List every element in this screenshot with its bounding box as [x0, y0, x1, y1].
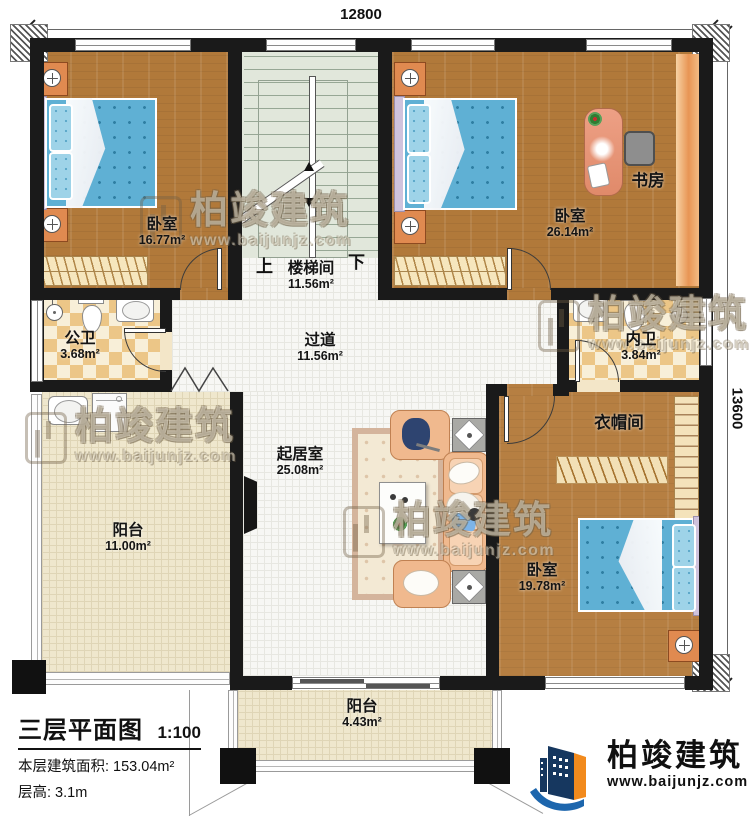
- room-area: 26.14m²: [547, 225, 594, 239]
- pillow: [49, 152, 73, 200]
- sliding-door-leaf: [366, 684, 430, 688]
- stair-up-label: 上: [256, 252, 273, 277]
- pillow: [672, 524, 696, 568]
- door-leaf: [124, 328, 166, 333]
- brand-name: 柏竣建筑: [607, 738, 748, 774]
- person-figure: [468, 508, 481, 521]
- stair-outline: [258, 80, 348, 258]
- wall-segment: [30, 380, 172, 392]
- pillow: [672, 566, 696, 612]
- brand-url: www.baijunjz.com: [607, 774, 748, 790]
- wall-segment: [440, 676, 545, 690]
- plan-title: 三层平面图: [18, 717, 143, 744]
- window: [31, 300, 43, 382]
- desk-lamp-glow: [589, 136, 615, 162]
- balcony-post: [220, 748, 256, 784]
- room-name: 内卫: [621, 331, 661, 348]
- wall-segment: [30, 288, 180, 300]
- sink-icon: [54, 400, 84, 423]
- wall-segment: [620, 380, 713, 392]
- wall-segment: [378, 52, 392, 300]
- folding-door: [170, 365, 230, 393]
- room-area: 11.00m²: [105, 539, 151, 553]
- window: [586, 39, 672, 51]
- door-leaf: [504, 396, 509, 442]
- brand-logo-text: 柏竣建筑 www.baijunjz.com: [607, 738, 748, 790]
- room-name: 起居室: [277, 446, 324, 463]
- wall-segment: [486, 384, 507, 396]
- door-leaf: [507, 248, 512, 290]
- room-area: 4.43m²: [342, 715, 382, 729]
- seat-cushion: [403, 570, 439, 596]
- room-label-living: 起居室 25.08m²: [277, 446, 324, 477]
- wardrobe-rack: [674, 396, 699, 520]
- hanging-rod: [556, 456, 668, 484]
- closet-strip: [676, 54, 699, 286]
- dresser: [36, 256, 148, 286]
- stair-direction-arrow: [304, 198, 314, 207]
- table-item: [402, 497, 408, 503]
- room-area: 3.68m²: [60, 347, 100, 361]
- desk-chair: [624, 131, 655, 166]
- lamp-icon: [401, 69, 419, 87]
- wall-segment: [230, 676, 292, 690]
- room-area: 25.08m²: [277, 463, 324, 477]
- room-name: 阳台: [342, 698, 382, 715]
- dim-right-label: 13600: [729, 384, 746, 434]
- wall-segment: [551, 288, 713, 300]
- room-area: 16.77m²: [139, 233, 186, 247]
- wardrobe: [394, 256, 506, 286]
- door-gap-floor: [507, 384, 553, 396]
- title-block: 三层平面图 1:100 本层建筑面积: 153.04m² 层高: 3.1m: [18, 710, 201, 802]
- room-name: 公卫: [60, 330, 100, 347]
- lamp-icon: [43, 69, 61, 87]
- shower-head-icon: [671, 307, 688, 324]
- pillow: [407, 154, 431, 204]
- lamp-icon: [675, 636, 693, 654]
- room-label-study: 书房: [632, 172, 665, 190]
- plant-icon: [588, 112, 602, 126]
- dim-top-label: 12800: [330, 6, 392, 23]
- room-name: 楼梯间: [288, 260, 335, 277]
- stair-down-label: 下: [348, 248, 365, 273]
- wall-segment: [553, 384, 569, 396]
- pillow: [407, 104, 431, 154]
- room-name: 衣帽间: [594, 414, 644, 432]
- sliding-door-leaf: [300, 679, 364, 683]
- window: [700, 298, 712, 366]
- sink-icon: [122, 301, 150, 320]
- door-leaf: [217, 248, 222, 290]
- shower-head-icon: [46, 304, 63, 321]
- brand-logo-icon: [520, 738, 600, 814]
- room-label-corridor: 过道 11.56m²: [297, 332, 343, 363]
- room-name: 卧室: [547, 208, 594, 225]
- room-label-bottom-balcony: 阳台 4.43m²: [342, 698, 382, 729]
- dimension-line-right: [727, 34, 728, 686]
- plan-height-line: 层高: 3.1m: [18, 781, 201, 802]
- window: [545, 677, 685, 689]
- flower-vase-icon: [392, 516, 408, 532]
- lamp-icon: [401, 217, 419, 235]
- stair-direction-arrow: [304, 162, 314, 171]
- balcony-post: [12, 660, 46, 694]
- room-area: 3.84m²: [621, 348, 661, 362]
- room-label-bedroom2: 卧室 26.14m²: [547, 208, 594, 239]
- plan-area-line: 本层建筑面积: 153.04m²: [18, 755, 201, 776]
- coffee-table: [379, 482, 426, 544]
- brand-logo: 柏竣建筑 www.baijunjz.com: [520, 738, 748, 814]
- room-label-left-balcony: 阳台 11.00m²: [105, 522, 151, 553]
- table-lamp-icon: [467, 585, 472, 590]
- window: [75, 39, 191, 51]
- room-area: 11.56m²: [288, 277, 335, 291]
- balcony-post: [474, 748, 510, 784]
- room-label-bedroom1: 卧室 16.77m²: [139, 216, 186, 247]
- window: [266, 39, 356, 51]
- room-area: 11.56m²: [297, 349, 343, 363]
- wall-segment: [392, 288, 507, 300]
- dimension-line-top: [30, 29, 713, 30]
- tv: [244, 476, 257, 534]
- plan-title-row: 三层平面图 1:100: [18, 710, 201, 750]
- balcony-railing: [31, 672, 230, 685]
- room-name: 卧室: [519, 562, 566, 579]
- plan-scale: 1:100: [157, 723, 200, 742]
- pillow: [49, 104, 73, 152]
- room-name: 阳台: [105, 522, 151, 539]
- table-item: [390, 494, 396, 500]
- window: [411, 39, 495, 51]
- wall-segment: [685, 676, 713, 690]
- wall-segment: [228, 52, 242, 300]
- room-name: 过道: [297, 332, 343, 349]
- lamp-icon: [43, 215, 61, 233]
- wall-segment: [486, 390, 499, 676]
- balcony-railing: [31, 394, 42, 676]
- wall-segment: [557, 300, 569, 392]
- room-label-public-bath: 公卫 3.68m²: [60, 330, 100, 361]
- room-label-private-bath: 内卫 3.84m²: [621, 331, 661, 362]
- side-table: [452, 418, 486, 452]
- side-table: [452, 570, 486, 604]
- room-label-stairwell: 楼梯间 11.56m²: [288, 260, 335, 291]
- room-label-bedroom3: 卧室 19.78m²: [519, 562, 566, 593]
- room-label-cloakroom: 衣帽间: [594, 414, 644, 432]
- room-name: 书房: [632, 172, 665, 190]
- floor-plan-canvas: 12800 13600: [0, 0, 750, 829]
- door-leaf: [575, 340, 580, 382]
- sofa-cushion: [449, 530, 483, 566]
- room-name: 卧室: [139, 216, 186, 233]
- sink-icon: [578, 299, 605, 319]
- balcony-railing: [228, 760, 510, 772]
- washing-machine: [92, 393, 127, 432]
- room-area: 19.78m²: [519, 579, 566, 593]
- table-lamp-icon: [467, 433, 472, 438]
- wall-segment: [230, 392, 243, 676]
